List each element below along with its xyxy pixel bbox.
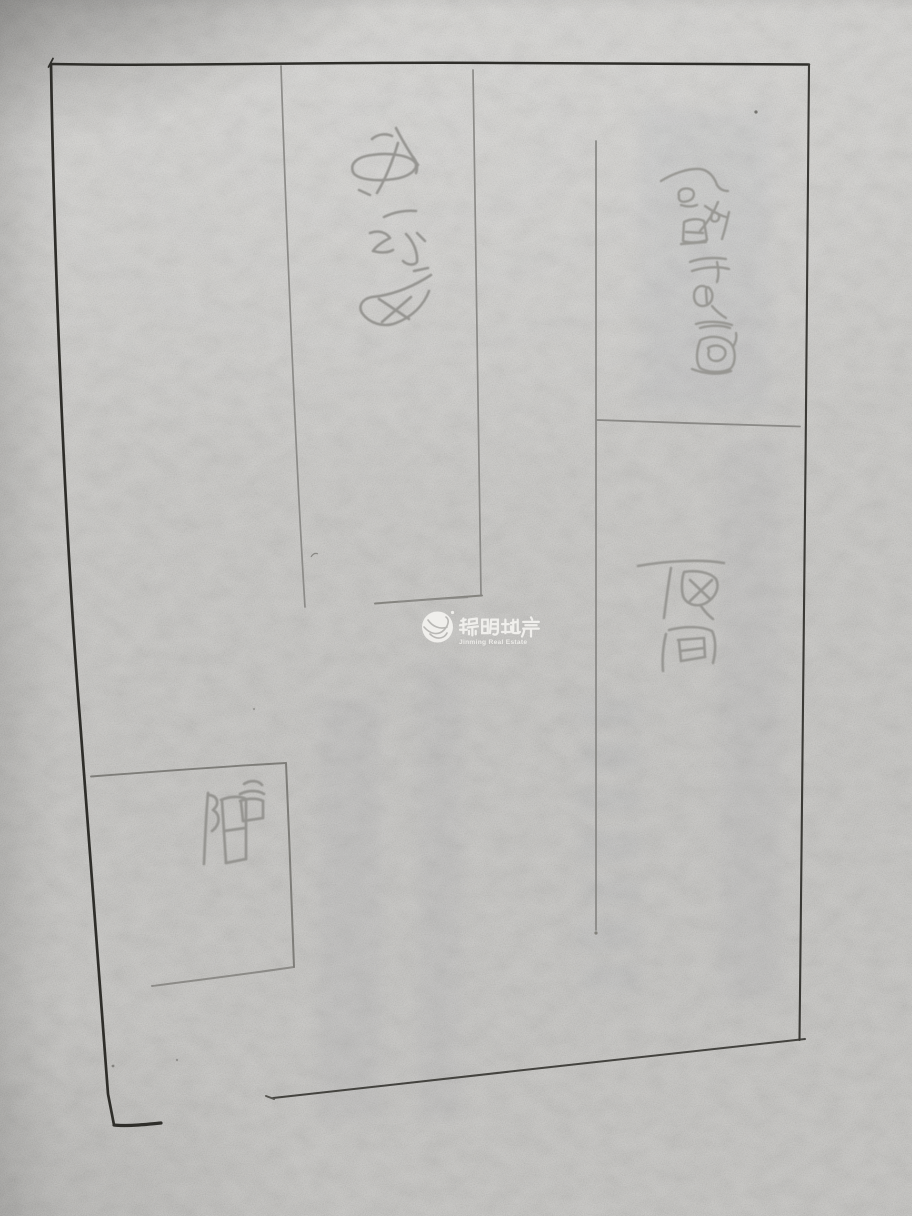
svg-text:Jinming Real Estate: Jinming Real Estate: [459, 639, 527, 646]
